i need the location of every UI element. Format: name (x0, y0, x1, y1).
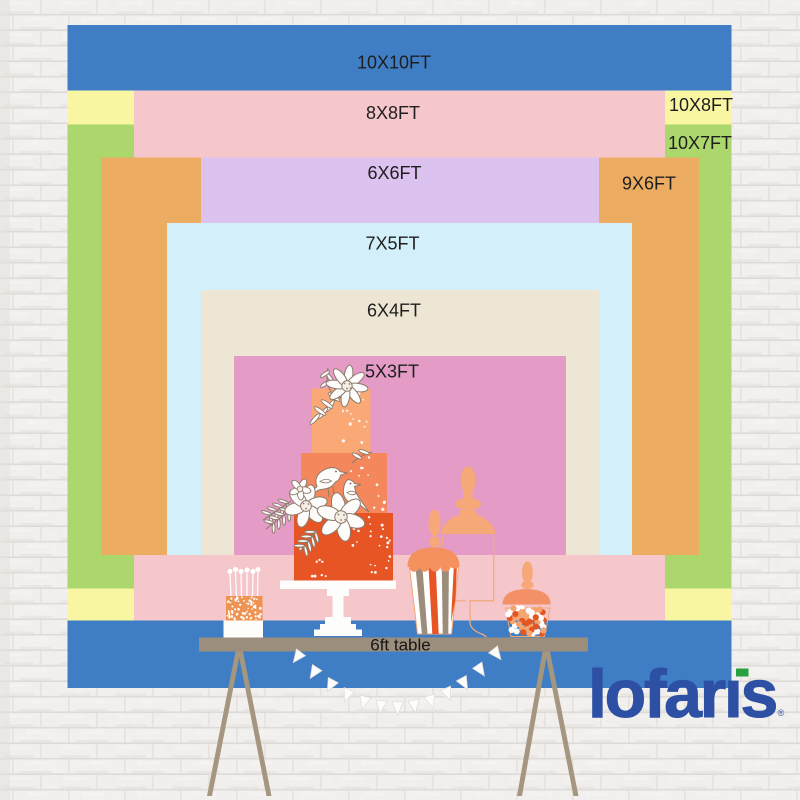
svg-text:9X6FT: 9X6FT (622, 174, 676, 194)
svg-text:lofarıs: lofarıs (588, 656, 776, 732)
svg-text:7X5FT: 7X5FT (365, 234, 419, 254)
svg-text:10X7FT: 10X7FT (668, 133, 732, 153)
svg-text:5X3FT: 5X3FT (365, 362, 419, 382)
svg-text:6ft table: 6ft table (370, 636, 431, 655)
svg-text:6X4FT: 6X4FT (367, 301, 421, 321)
svg-text:6X6FT: 6X6FT (367, 163, 421, 183)
svg-text:®: ® (778, 708, 785, 718)
svg-text:8X8FT: 8X8FT (366, 103, 420, 123)
svg-text:10X8FT: 10X8FT (669, 95, 733, 115)
svg-text:10X10FT: 10X10FT (357, 53, 431, 73)
